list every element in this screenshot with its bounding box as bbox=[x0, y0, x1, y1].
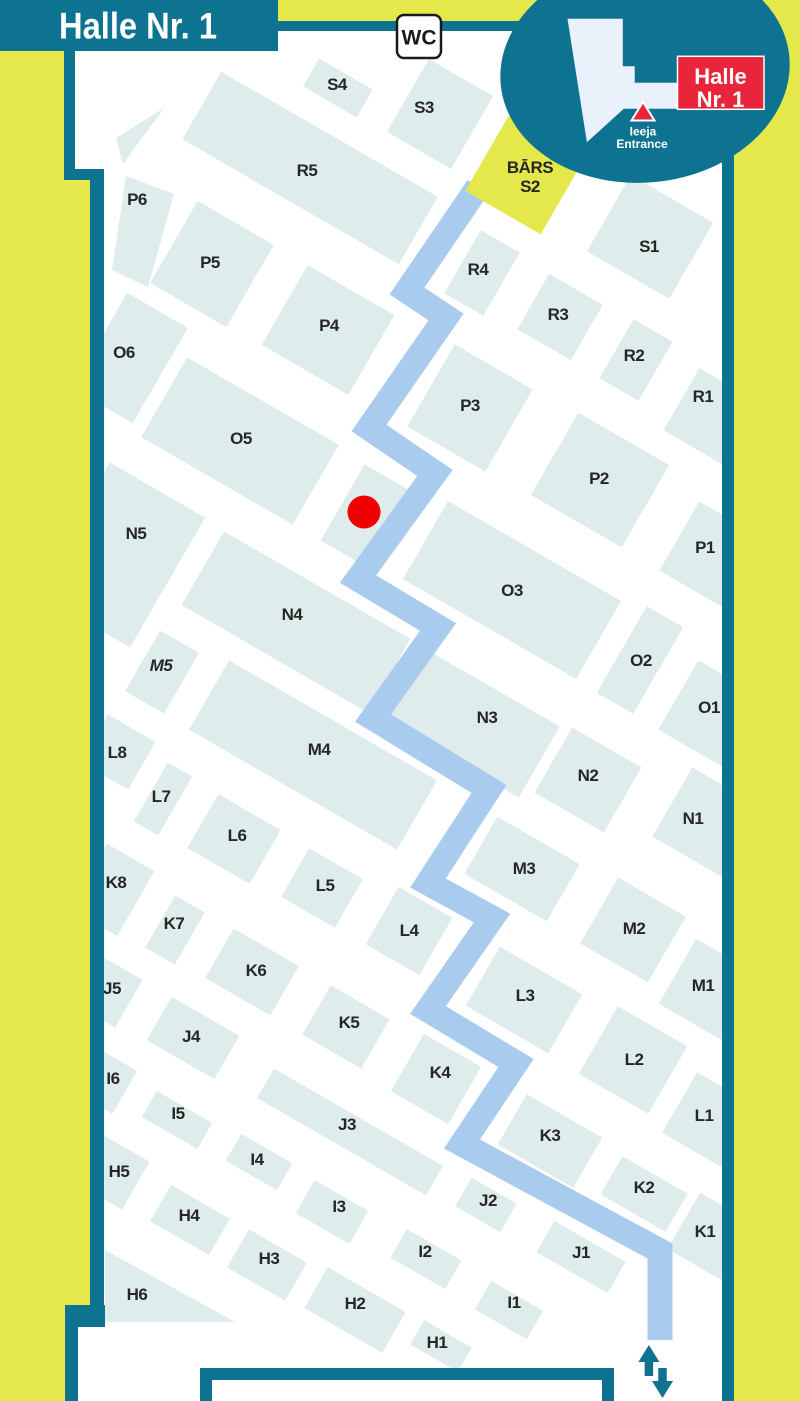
svg-text:O3: O3 bbox=[501, 581, 523, 600]
svg-text:L8: L8 bbox=[108, 743, 127, 762]
svg-text:WC: WC bbox=[402, 26, 437, 50]
svg-text:Entrance: Entrance bbox=[616, 137, 668, 151]
svg-text:K8: K8 bbox=[106, 873, 127, 892]
svg-text:K6: K6 bbox=[246, 961, 267, 980]
svg-text:L6: L6 bbox=[228, 826, 247, 845]
svg-text:K5: K5 bbox=[339, 1013, 360, 1032]
svg-text:O2: O2 bbox=[630, 651, 652, 670]
svg-text:H1: H1 bbox=[427, 1333, 448, 1352]
svg-text:I6: I6 bbox=[106, 1069, 119, 1088]
svg-text:L5: L5 bbox=[316, 876, 335, 895]
svg-text:S2: S2 bbox=[520, 177, 540, 196]
svg-text:H4: H4 bbox=[179, 1206, 201, 1225]
svg-text:M4: M4 bbox=[308, 740, 332, 759]
svg-text:I4: I4 bbox=[250, 1150, 264, 1169]
svg-text:I5: I5 bbox=[171, 1104, 184, 1123]
svg-text:M5: M5 bbox=[150, 656, 174, 675]
svg-text:L7: L7 bbox=[152, 787, 171, 806]
svg-text:R4: R4 bbox=[468, 260, 490, 279]
svg-text:N3: N3 bbox=[477, 708, 498, 727]
svg-text:M1: M1 bbox=[692, 976, 715, 995]
svg-text:S4: S4 bbox=[327, 75, 348, 94]
svg-text:Halle: Halle bbox=[694, 64, 747, 89]
svg-text:K2: K2 bbox=[634, 1178, 655, 1197]
svg-text:L4: L4 bbox=[400, 921, 420, 940]
svg-text:M3: M3 bbox=[513, 859, 536, 878]
svg-text:Nr. 1: Nr. 1 bbox=[697, 87, 745, 112]
svg-text:BĀRS: BĀRS bbox=[507, 158, 553, 177]
svg-text:L1: L1 bbox=[695, 1106, 714, 1125]
svg-text:P1: P1 bbox=[695, 538, 715, 557]
svg-text:J5: J5 bbox=[103, 979, 121, 998]
svg-text:S1: S1 bbox=[639, 237, 659, 256]
svg-text:Halle Nr. 1: Halle Nr. 1 bbox=[59, 6, 217, 47]
svg-text:R3: R3 bbox=[548, 305, 569, 324]
svg-text:L3: L3 bbox=[516, 986, 535, 1005]
svg-text:N4: N4 bbox=[282, 605, 304, 624]
svg-text:O6: O6 bbox=[113, 343, 135, 362]
svg-text:J4: J4 bbox=[182, 1027, 201, 1046]
svg-text:P6: P6 bbox=[127, 190, 147, 209]
svg-text:N5: N5 bbox=[126, 524, 147, 543]
svg-text:K3: K3 bbox=[540, 1126, 561, 1145]
svg-text:J3: J3 bbox=[338, 1115, 356, 1134]
svg-text:S3: S3 bbox=[414, 98, 434, 117]
svg-text:R1: R1 bbox=[693, 387, 714, 406]
svg-text:I1: I1 bbox=[507, 1293, 520, 1312]
svg-text:P4: P4 bbox=[319, 316, 340, 335]
svg-text:I3: I3 bbox=[332, 1197, 345, 1216]
svg-text:I2: I2 bbox=[418, 1242, 431, 1261]
svg-text:O5: O5 bbox=[230, 429, 252, 448]
svg-text:J2: J2 bbox=[479, 1191, 497, 1210]
svg-text:K4: K4 bbox=[430, 1063, 452, 1082]
svg-text:R5: R5 bbox=[297, 161, 318, 180]
svg-text:N2: N2 bbox=[578, 766, 599, 785]
svg-text:H3: H3 bbox=[259, 1249, 280, 1268]
svg-text:O1: O1 bbox=[698, 698, 720, 717]
svg-text:N1: N1 bbox=[683, 809, 704, 828]
svg-text:H6: H6 bbox=[127, 1285, 148, 1304]
svg-text:K1: K1 bbox=[695, 1222, 716, 1241]
svg-text:L2: L2 bbox=[625, 1050, 644, 1069]
svg-text:P2: P2 bbox=[589, 469, 609, 488]
svg-text:J1: J1 bbox=[572, 1243, 590, 1262]
svg-text:K7: K7 bbox=[164, 914, 185, 933]
svg-text:H5: H5 bbox=[109, 1162, 130, 1181]
svg-text:M2: M2 bbox=[623, 919, 646, 938]
svg-text:P5: P5 bbox=[200, 253, 220, 272]
svg-text:R2: R2 bbox=[624, 346, 645, 365]
svg-text:H2: H2 bbox=[345, 1294, 366, 1313]
svg-text:P3: P3 bbox=[460, 396, 480, 415]
